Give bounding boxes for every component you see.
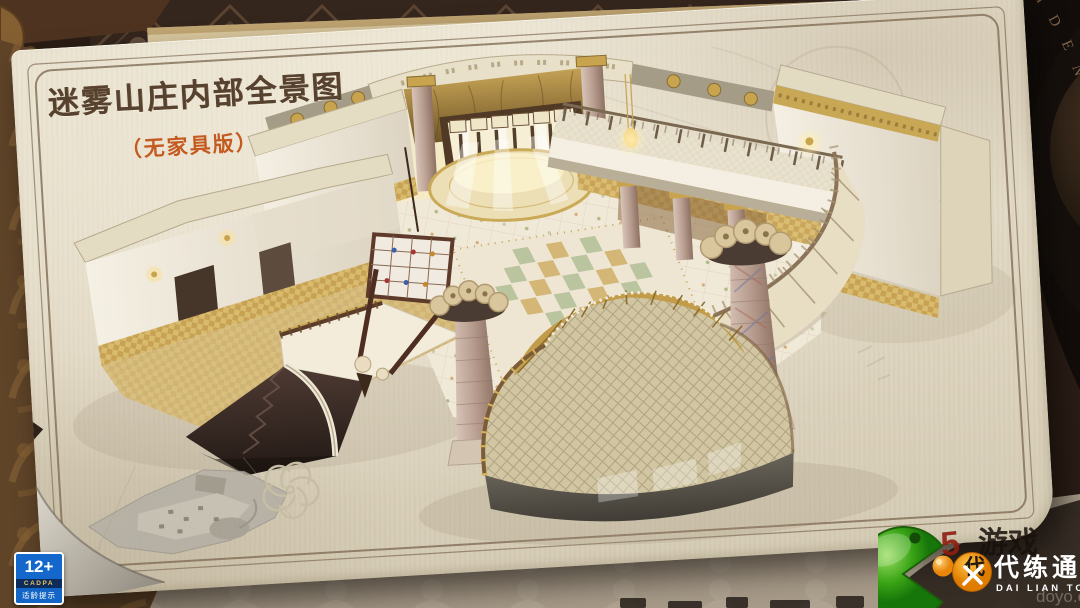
map-poster: 迷雾山庄内部全景图 （无家具版） [11,0,1056,598]
brand-name-en: DAI LIAN TONG [996,583,1080,594]
age-rating-org: CADPA [16,579,62,588]
ball-highlight [936,559,942,565]
paper-tear [33,421,44,440]
screenshot-stage: IDENTITY [0,0,1080,608]
orange-ball-icon [933,556,954,577]
brand-name-cn: 代练通 [993,553,1080,582]
tool-badge-icon: 代 [953,553,992,592]
age-rating-value: 12+ [16,554,62,579]
age-rating-badge: 12+ CADPA 适龄提示 [14,552,64,605]
pacman-logo-icon [878,527,942,608]
cornice-right [630,55,776,119]
age-rating-caption: 适龄提示 [16,588,62,603]
dailiantong-watermark: 5 游戏 doyo.cn 代 代练通 DAI LIAN TONG [878,518,1080,608]
